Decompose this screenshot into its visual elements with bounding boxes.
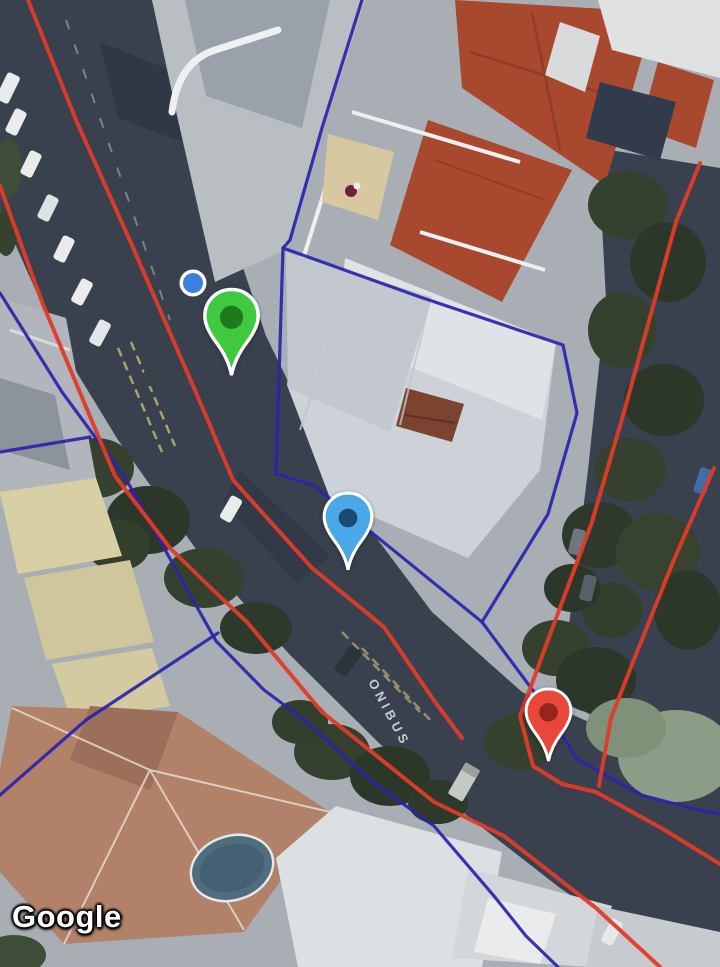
marker-blue-inner — [339, 509, 358, 528]
google-attribution[interactable]: Google — [12, 899, 122, 935]
red-boundary-west — [0, 186, 660, 967]
marker-red-inner — [539, 703, 558, 722]
navy-boundary-north — [283, 0, 362, 248]
overlay-lines — [0, 0, 720, 967]
satellite-map[interactable]: ONIBUS — [0, 0, 720, 967]
marker-green-inner — [220, 306, 243, 329]
navy-boundary-corner — [0, 633, 218, 795]
red-boundary-east-inner — [599, 468, 714, 786]
navy-boundary-west-spur — [0, 437, 90, 452]
